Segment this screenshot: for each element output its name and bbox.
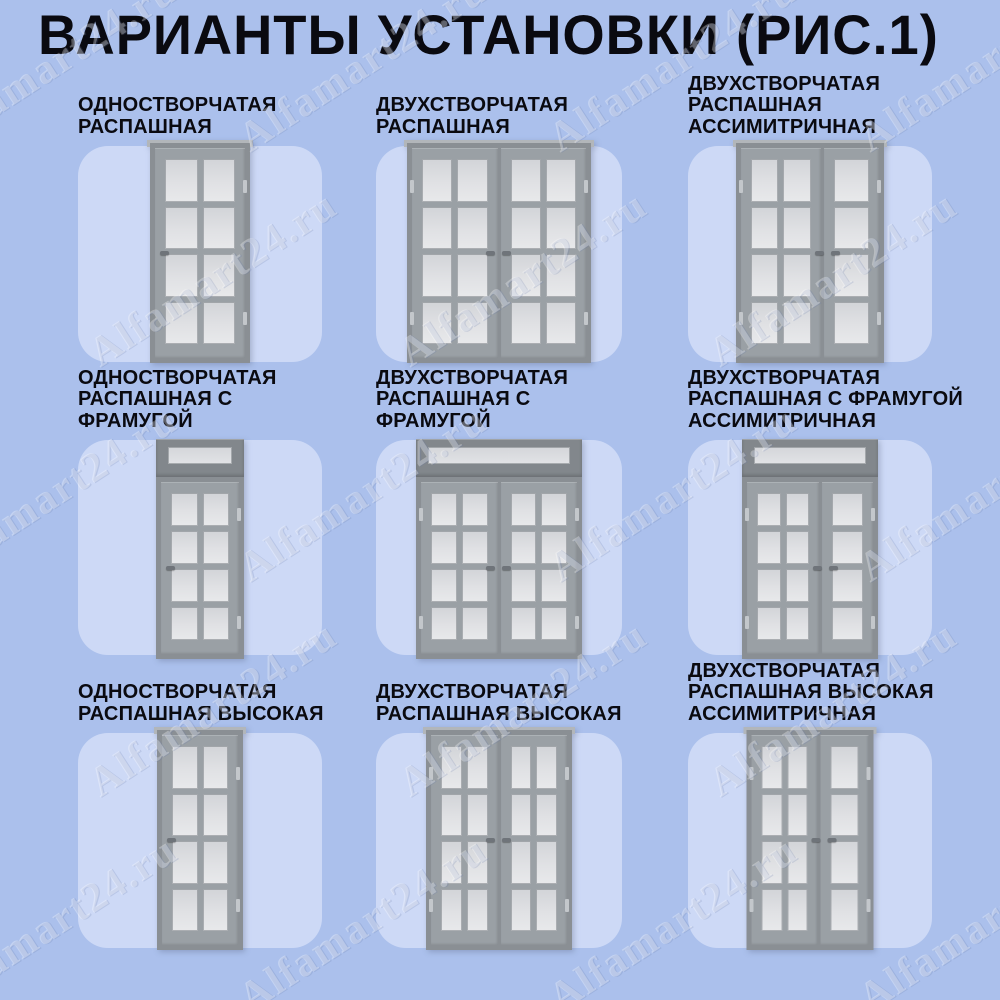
- door-hinge: [410, 180, 414, 193]
- door-cell: ДВУХСТВОРЧАТАЯРАСПАШНАЯ С ФРАМУГОЙАССИМИ…: [688, 440, 932, 655]
- glass-pane: [172, 889, 198, 932]
- glass-pane: [787, 746, 808, 789]
- door-handle: [831, 251, 840, 255]
- glass-pane: [541, 531, 567, 564]
- cell-label-line: ДВУХСТВОРЧАТАЯ: [376, 682, 706, 703]
- cell-label-line: АССИМИТРИЧНАЯ: [688, 117, 1000, 138]
- cell-label-line: РАСПАШНАЯ С: [78, 389, 408, 410]
- door-handle: [502, 251, 511, 255]
- door-leaf: [752, 735, 818, 945]
- glass-pane: [751, 207, 778, 250]
- glass-pane: [511, 302, 541, 345]
- glass-pane: [546, 302, 576, 345]
- door-hinge: [243, 312, 247, 325]
- door-hinge: [871, 508, 875, 521]
- glass-pane: [171, 493, 198, 526]
- cell-label: ОДНОСТВОРЧАТАЯРАСПАШНАЯ ВЫСОКАЯ: [78, 682, 408, 725]
- door-hinge: [429, 767, 433, 780]
- glass-pane: [511, 531, 537, 564]
- glass-pane: [783, 302, 810, 345]
- door-body: [150, 143, 250, 363]
- door-cell: ДВУХСТВОРЧАТАЯРАСПАШНАЯАССИМИТРИЧНАЯ: [688, 146, 932, 362]
- door-handle: [828, 838, 837, 842]
- glass-grid: [165, 159, 235, 344]
- glass-pane: [467, 889, 488, 932]
- door-body: [426, 730, 572, 950]
- cell-label: ДВУХСТВОРЧАТАЯРАСПАШНАЯ С ФРАМУГОЙАССИМИ…: [688, 368, 1000, 432]
- cell-label-line: РАСПАШНАЯ С: [376, 389, 706, 410]
- glass-pane: [832, 569, 863, 602]
- glass-pane: [762, 794, 783, 837]
- glass-pane: [203, 746, 229, 789]
- cell-label-line: ФРАМУГОЙ: [78, 411, 408, 432]
- cell-label-line: РАСПАШНАЯ С ФРАМУГОЙ: [688, 389, 1000, 410]
- glass-pane: [171, 607, 198, 640]
- glass-pane: [834, 254, 869, 297]
- door-handle: [166, 566, 175, 570]
- glass-pane: [441, 794, 462, 837]
- door-handle: [167, 838, 176, 842]
- glass-pane: [203, 569, 230, 602]
- door-handle: [502, 838, 511, 842]
- glass-pane: [467, 794, 488, 837]
- glass-pane: [831, 746, 859, 789]
- glass-pane: [172, 794, 198, 837]
- door-illustration: [742, 439, 878, 659]
- door-hinge: [739, 312, 743, 325]
- glass-pane: [165, 302, 198, 345]
- glass-pane: [787, 889, 808, 932]
- glass-pane: [832, 531, 863, 564]
- glass-pane: [467, 746, 488, 789]
- door-hinge: [575, 508, 579, 521]
- door-illustration: [736, 143, 884, 363]
- glass-pane: [431, 493, 457, 526]
- glass-pane: [422, 302, 452, 345]
- door-hinge: [237, 508, 241, 521]
- glass-grid: [171, 493, 229, 640]
- glass-grid: [511, 746, 558, 931]
- cell-label-line: ДВУХСТВОРЧАТАЯ: [688, 74, 1000, 95]
- door-cell: ОДНОСТВОРЧАТАЯРАСПАШНАЯ: [78, 146, 322, 362]
- glass-pane: [431, 531, 457, 564]
- cell-label-line: АССИМИТРИЧНАЯ: [688, 704, 1000, 725]
- transom-window: [754, 447, 866, 464]
- door-hinge: [236, 767, 240, 780]
- glass-pane: [457, 254, 487, 297]
- cell-label-line: РАСПАШНАЯ ВЫСОКАЯ: [376, 704, 706, 725]
- door-hinge: [575, 616, 579, 629]
- cell-label: ДВУХСТВОРЧАТАЯРАСПАШНАЯ СФРАМУГОЙ: [376, 368, 706, 432]
- glass-pane: [203, 889, 229, 932]
- glass-pane: [783, 159, 810, 202]
- glass-pane: [171, 531, 198, 564]
- glass-pane: [751, 302, 778, 345]
- glass-pane: [787, 841, 808, 884]
- cell-label-line: ФРАМУГОЙ: [376, 411, 706, 432]
- door-leaf: [412, 148, 498, 358]
- cell-label: ДВУХСТВОРЧАТАЯРАСПАШНАЯАССИМИТРИЧНАЯ: [688, 74, 1000, 138]
- glass-pane: [786, 607, 810, 640]
- glass-pane: [831, 889, 859, 932]
- transom: [742, 439, 878, 477]
- door-leaf: [747, 482, 819, 654]
- door-illustration: [426, 730, 572, 950]
- glass-pane: [422, 159, 452, 202]
- cell-label-line: ОДНОСТВОРЧАТАЯ: [78, 368, 408, 389]
- glass-pane: [441, 889, 462, 932]
- door-hinge: [419, 616, 423, 629]
- glass-pane: [546, 254, 576, 297]
- glass-pane: [783, 254, 810, 297]
- glass-pane: [511, 889, 532, 932]
- glass-pane: [511, 746, 532, 789]
- door-hinge: [584, 312, 588, 325]
- glass-grid: [431, 493, 488, 640]
- door-leaf: [501, 482, 578, 654]
- glass-pane: [511, 794, 532, 837]
- door-body: [416, 477, 582, 659]
- door-hinge: [745, 616, 749, 629]
- glass-grid: [422, 159, 488, 344]
- cell-label-line: РАСПАШНАЯ: [78, 117, 408, 138]
- cell-label-line: РАСПАШНАЯ ВЫСОКАЯ: [688, 682, 1000, 703]
- glass-pane: [203, 794, 229, 837]
- cell-label-line: АССИМИТРИЧНАЯ: [688, 411, 1000, 432]
- cell-label-line: ОДНОСТВОРЧАТАЯ: [78, 95, 408, 116]
- glass-pane: [786, 531, 810, 564]
- door-handle: [486, 838, 495, 842]
- door-grid: ОДНОСТВОРЧАТАЯРАСПАШНАЯДВУХСТВОРЧАТАЯРАС…: [0, 0, 1000, 1000]
- glass-grid: [511, 493, 568, 640]
- glass-grid: [751, 159, 811, 344]
- glass-pane: [462, 569, 488, 602]
- glass-pane: [467, 841, 488, 884]
- glass-pane: [757, 531, 781, 564]
- glass-pane: [834, 302, 869, 345]
- door-hinge: [565, 767, 569, 780]
- cell-label-line: ДВУХСТВОРЧАТАЯ: [376, 368, 706, 389]
- cell-label: ДВУХСТВОРЧАТАЯРАСПАШНАЯ: [376, 95, 706, 138]
- door-cell: ДВУХСТВОРЧАТАЯРАСПАШНАЯ ВЫСОКАЯ: [376, 733, 622, 948]
- glass-pane: [834, 207, 869, 250]
- door-illustration: [150, 143, 250, 363]
- door-handle: [815, 251, 824, 255]
- glass-pane: [165, 254, 198, 297]
- glass-pane: [511, 569, 537, 602]
- door-hinge: [877, 312, 881, 325]
- glass-pane: [171, 569, 198, 602]
- glass-pane: [441, 746, 462, 789]
- glass-pane: [462, 493, 488, 526]
- door-hinge: [867, 767, 871, 780]
- glass-pane: [541, 607, 567, 640]
- door-hinge: [236, 899, 240, 912]
- door-installation-infographic: ВАРИАНТЫ УСТАНОВКИ (РИС.1) ОДНОСТВОРЧАТА…: [0, 0, 1000, 1000]
- glass-pane: [462, 531, 488, 564]
- door-body: [742, 477, 878, 659]
- glass-pane: [757, 493, 781, 526]
- door-illustration: [157, 730, 243, 950]
- glass-pane: [203, 159, 236, 202]
- glass-pane: [751, 254, 778, 297]
- door-body: [747, 730, 874, 950]
- glass-grid: [441, 746, 488, 931]
- door-body: [156, 477, 244, 659]
- glass-grid: [757, 493, 809, 640]
- glass-pane: [762, 746, 783, 789]
- door-cell: ДВУХСТВОРЧАТАЯРАСПАШНАЯ СФРАМУГОЙ: [376, 440, 622, 655]
- glass-pane: [431, 569, 457, 602]
- glass-pane: [546, 207, 576, 250]
- door-hinge: [565, 899, 569, 912]
- cell-label: ДВУХСТВОРЧАТАЯРАСПАШНАЯ ВЫСОКАЯАССИМИТРИ…: [688, 661, 1000, 725]
- glass-pane: [457, 207, 487, 250]
- glass-pane: [203, 841, 229, 884]
- door-hinge: [739, 180, 743, 193]
- door-leaf: [501, 148, 587, 358]
- glass-pane: [511, 159, 541, 202]
- cell-label-line: РАСПАШНАЯ: [376, 117, 706, 138]
- glass-pane: [786, 569, 810, 602]
- door-illustration: [416, 439, 582, 659]
- door-handle: [486, 566, 495, 570]
- cell-label-line: РАСПАШНАЯ ВЫСОКАЯ: [78, 704, 408, 725]
- cell-label-line: РАСПАШНАЯ: [688, 95, 1000, 116]
- door-hinge: [871, 616, 875, 629]
- glass-pane: [762, 889, 783, 932]
- cell-label-line: ДВУХСТВОРЧАТАЯ: [688, 368, 1000, 389]
- glass-pane: [172, 746, 198, 789]
- glass-pane: [203, 207, 236, 250]
- cell-label-line: ОДНОСТВОРЧАТАЯ: [78, 682, 408, 703]
- glass-pane: [203, 607, 230, 640]
- door-hinge: [745, 508, 749, 521]
- door-illustration: [747, 730, 874, 950]
- glass-pane: [762, 841, 783, 884]
- door-hinge: [867, 899, 871, 912]
- door-cell: ОДНОСТВОРЧАТАЯРАСПАШНАЯ СФРАМУГОЙ: [78, 440, 322, 655]
- glass-pane: [203, 302, 236, 345]
- door-hinge: [243, 180, 247, 193]
- glass-pane: [462, 607, 488, 640]
- glass-pane: [536, 746, 557, 789]
- door-hinge: [750, 767, 754, 780]
- glass-pane: [203, 254, 236, 297]
- glass-pane: [457, 302, 487, 345]
- door-hinge: [410, 312, 414, 325]
- door-hinge: [237, 616, 241, 629]
- door-handle: [502, 566, 511, 570]
- glass-pane: [457, 159, 487, 202]
- glass-pane: [751, 159, 778, 202]
- door-handle: [812, 838, 821, 842]
- glass-pane: [511, 841, 532, 884]
- glass-pane: [831, 794, 859, 837]
- glass-grid: [511, 159, 577, 344]
- glass-pane: [832, 607, 863, 640]
- cell-label: ОДНОСТВОРЧАТАЯРАСПАШНАЯ СФРАМУГОЙ: [78, 368, 408, 432]
- door-illustration: [156, 439, 244, 659]
- door-cell: ДВУХСТВОРЧАТАЯРАСПАШНАЯ: [376, 146, 622, 362]
- glass-grid: [172, 746, 228, 931]
- transom: [416, 439, 582, 477]
- glass-pane: [757, 607, 781, 640]
- glass-pane: [431, 607, 457, 640]
- transom-window: [428, 447, 570, 464]
- door-hinge: [877, 180, 881, 193]
- glass-pane: [536, 889, 557, 932]
- glass-pane: [422, 207, 452, 250]
- glass-pane: [511, 607, 537, 640]
- cell-label-line: ДВУХСТВОРЧАТАЯ: [688, 661, 1000, 682]
- door-leaf: [741, 148, 821, 358]
- glass-pane: [834, 159, 869, 202]
- door-hinge: [584, 180, 588, 193]
- glass-pane: [831, 841, 859, 884]
- glass-pane: [536, 794, 557, 837]
- door-hinge: [750, 899, 754, 912]
- door-cell: ОДНОСТВОРЧАТАЯРАСПАШНАЯ ВЫСОКАЯ: [78, 733, 322, 948]
- glass-pane: [832, 493, 863, 526]
- door-hinge: [419, 508, 423, 521]
- glass-pane: [441, 841, 462, 884]
- glass-pane: [165, 159, 198, 202]
- door-body: [157, 730, 243, 950]
- transom: [156, 439, 244, 477]
- door-hinge: [429, 899, 433, 912]
- glass-pane: [757, 569, 781, 602]
- glass-pane: [546, 159, 576, 202]
- cell-label: ОДНОСТВОРЧАТАЯРАСПАШНАЯ: [78, 95, 408, 138]
- glass-pane: [786, 493, 810, 526]
- glass-pane: [536, 841, 557, 884]
- door-cell: ДВУХСТВОРЧАТАЯРАСПАШНАЯ ВЫСОКАЯАССИМИТРИ…: [688, 733, 932, 948]
- glass-pane: [541, 569, 567, 602]
- glass-pane: [165, 207, 198, 250]
- glass-pane: [511, 254, 541, 297]
- door-body: [736, 143, 884, 363]
- door-handle: [829, 566, 838, 570]
- door-handle: [160, 251, 169, 255]
- door-handle: [813, 566, 822, 570]
- glass-pane: [787, 794, 808, 837]
- transom-window: [168, 447, 232, 464]
- glass-grid: [762, 746, 808, 931]
- glass-pane: [203, 493, 230, 526]
- page-title: ВАРИАНТЫ УСТАНОВКИ (РИС.1): [38, 2, 939, 67]
- glass-pane: [783, 207, 810, 250]
- cell-label-line: ДВУХСТВОРЧАТАЯ: [376, 95, 706, 116]
- glass-pane: [203, 531, 230, 564]
- door-handle: [486, 251, 495, 255]
- glass-pane: [422, 254, 452, 297]
- glass-pane: [541, 493, 567, 526]
- glass-pane: [511, 493, 537, 526]
- door-illustration: [407, 143, 591, 363]
- cell-label: ДВУХСТВОРЧАТАЯРАСПАШНАЯ ВЫСОКАЯ: [376, 682, 706, 725]
- door-body: [407, 143, 591, 363]
- glass-pane: [172, 841, 198, 884]
- glass-pane: [511, 207, 541, 250]
